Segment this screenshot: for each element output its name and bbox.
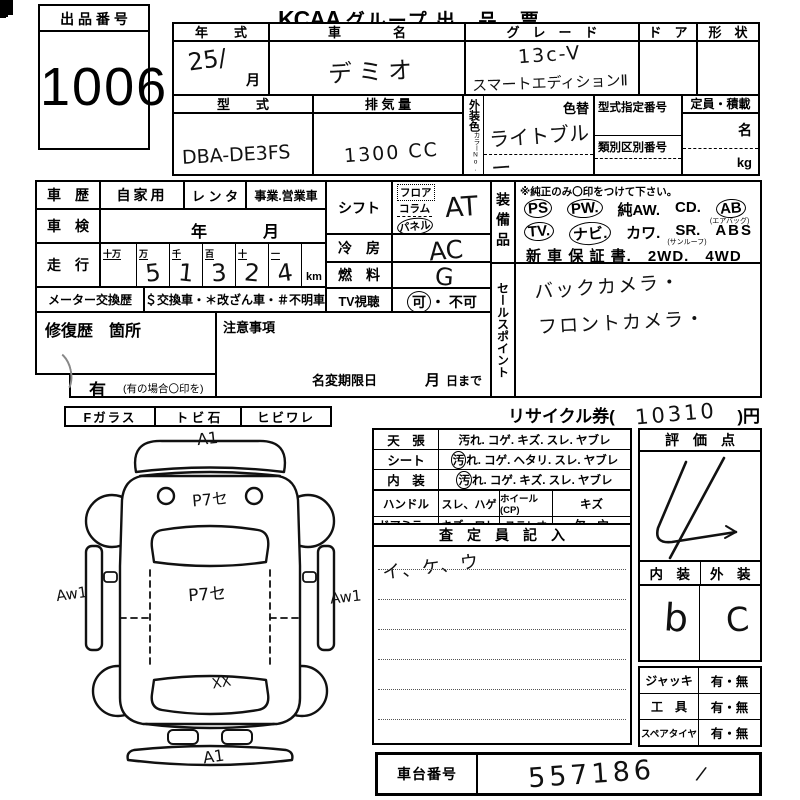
year-value: 25/ [186, 43, 228, 76]
grade-value-line2: スマートエディションⅡ [472, 69, 629, 95]
assessor-note: イ、ケ、ウ [381, 547, 482, 585]
tool-row-spare: スペアタイヤ 有・無 [640, 720, 760, 745]
shift-value-cell: フロア コラム パネル AT [391, 180, 492, 235]
mileage-col-100: 百 3 [203, 244, 236, 286]
spare-tire-label: スペアタイヤ [641, 726, 697, 740]
mileage-label: 走 行 [47, 255, 89, 275]
digit-value: 1 [169, 257, 204, 288]
chassis-label: 車台番号 [397, 764, 457, 784]
digit-value: 5 [136, 257, 171, 288]
repair-yes-cell: 有 (有の場合〇印を) [69, 373, 217, 398]
shaken-year-label: 年 [191, 218, 207, 242]
equipment-side-cell: 装備品 [490, 180, 516, 264]
wheel-items: キズ [580, 496, 603, 512]
ac-label: 冷 房 [338, 238, 380, 258]
equip-kawa: カワ. [626, 222, 660, 243]
equipment-cell: ※純正のみ〇印をつけて下さい。 PS PW. 純AW. CD. AB (エアバッ… [514, 180, 762, 264]
mileage-value-cell: 十万 万 5 千 1 百 3 十 2 一 4 km [99, 242, 327, 288]
class-number-label: 類別区別番号 [595, 136, 681, 155]
interior-score-value: b [662, 595, 689, 641]
score-value-text: 4 [640, 452, 641, 453]
meter-history-text-cell: ＄交換車・＊改ざん車・＃不明車 [143, 286, 327, 313]
score-box: 評 価 点 4 内 装 外 装 b C [638, 428, 762, 662]
condition-table: 天 張 汚れ. コゲ. キズ. スレ. ヤブレ シート 汚れ. コゲ. ヘタリ.… [372, 428, 632, 528]
mileage-col-10: 十 2 [236, 244, 269, 286]
ac-value-cell: AC [391, 233, 492, 263]
month-label: 月 [246, 70, 260, 90]
chassis-label-cell: 車台番号 [378, 755, 478, 793]
repair-history-label: 修復歴 箇所 [37, 313, 215, 341]
sales-side-cell: セールスポイント [490, 262, 516, 398]
assessor-line [378, 659, 626, 660]
exterior-color-cell: 外装色 カラーNo. 色替 ライトブルー [462, 94, 595, 176]
model-code-value: DBA-DE3FS [181, 141, 290, 169]
door-cell: ド ア [638, 22, 698, 96]
equip-cd: CD. [675, 199, 701, 216]
fuel-value-cell: G [391, 261, 492, 289]
history-label-cell: 車 歴 [35, 180, 101, 210]
displacement-cell: 排 気 量 1300 CC [312, 94, 464, 176]
shape-cell: 形 状 [696, 22, 760, 96]
tv-ng: ・ 不可 [431, 294, 477, 310]
mileage-col-100k: 十万 [101, 244, 137, 286]
mileage-col-1k: 千 1 [170, 244, 203, 286]
seat-items: れ. コゲ. ヘタリ. スレ. ヤブレ [466, 452, 618, 468]
shift-option-floor: フロア [397, 184, 435, 201]
jack-value: 有・無 [711, 671, 749, 690]
seat-label: シート [387, 450, 425, 469]
tv-ok-circled: 可 [407, 291, 431, 313]
mark-xx: XX [211, 673, 233, 692]
sales-line2: フロントカメラ・ [537, 304, 706, 340]
history-business: 事業.営業車 [254, 187, 317, 204]
equipment-side-label: 装備品 [493, 192, 513, 252]
mark-p-center: P7セ [187, 579, 227, 607]
tv-label-cell: TV視聴 [325, 287, 393, 313]
rename-deadline-label: 名変期限日 [312, 370, 377, 389]
assessor-box: 査 定 員 記 入 イ、ケ、ウ [372, 523, 632, 745]
history-private: 自家用 [117, 185, 168, 205]
handle-items: スレ、ハゲ [442, 496, 497, 512]
car-name-label: 車 名 [270, 24, 464, 42]
equipment-note: ※純正のみ〇印をつけて下さい。 [516, 182, 760, 199]
type-number-top: 型式指定番号 [595, 96, 681, 136]
tv-label: TV視聴 [339, 291, 380, 310]
history-private-cell: 自家用 [99, 180, 185, 210]
door-label: ド ア [640, 24, 696, 42]
sales-side-label: セールスポイント [495, 282, 512, 378]
spare-tire-value: 有・無 [711, 723, 749, 742]
assessor-line [378, 569, 626, 570]
mileage-unit: km [306, 271, 322, 283]
score-sub-divider [699, 586, 700, 660]
fglass-label: Fガラス [84, 407, 137, 426]
history-rental-cell: レ ン タ [183, 180, 247, 210]
weight-unit: kg [737, 155, 752, 170]
condition-row-handle: ハンドル スレ、ハゲ ホイール(CP) キズ [374, 491, 630, 517]
chassis-value: 557186 [527, 755, 656, 795]
model-code-cell: 型 式 DBA-DE3FS [172, 94, 314, 176]
exterior-score-label: 外 装 [710, 563, 751, 583]
persons-unit: 名 [738, 120, 752, 140]
chassis-box: 車台番号 557186 / [375, 752, 762, 796]
model-code-label: 型 式 [174, 96, 312, 114]
grade-cell: グ レ ー ド 13c-V スマートエディションⅡ [464, 22, 640, 96]
interior-circled-item: 汚 [456, 471, 472, 489]
grade-value-line1: 13c-V [517, 42, 582, 68]
history-rental: レ ン タ [192, 186, 238, 205]
scan-artifact [0, 0, 6, 18]
recycle-row: リサイクル券( 10310 )円 [490, 400, 762, 426]
hibiware-cell: ヒビワレ [240, 406, 332, 427]
assessor-title: 査 定 員 記 入 [374, 525, 630, 547]
ceiling-label: 天 張 [387, 430, 425, 449]
seat-circled-item: 汚 [451, 451, 467, 469]
history-business-cell: 事業.営業車 [245, 180, 327, 210]
capacity-cell: 定員・積載 名 kg [681, 94, 760, 176]
equip-abs: ABS [715, 222, 753, 239]
tv-value: 可・ 不可 [407, 291, 477, 313]
recycle-value: 10310 [634, 398, 718, 429]
tools-value: 有・無 [711, 697, 749, 716]
sales-cell: バックカメラ・ フロントカメラ・ [514, 262, 762, 398]
digit-value: 2 [235, 258, 269, 289]
year-label: 年 式 [174, 24, 268, 42]
tool-row-tools: 工 具 有・無 [640, 694, 760, 720]
shift-option-column: コラム [397, 201, 432, 217]
equip-aw: 純AW. [618, 199, 661, 220]
exterior-color-label: 外装色 [466, 99, 482, 132]
interior-label: 内 装 [387, 470, 425, 489]
digit-header: 十万 [103, 249, 121, 260]
hibiware-label: ヒビワレ [257, 407, 315, 426]
shift-value: AT [444, 191, 479, 224]
mileage-col-10k: 万 5 [137, 244, 170, 286]
car-name-value: デミオ [327, 50, 419, 90]
score-title: 評 価 点 [640, 430, 760, 452]
fuel-label-cell: 燃 料 [325, 261, 393, 289]
lot-number-label: 出 品 番 号 [40, 6, 148, 32]
meter-history-label: メーター交換歴 [48, 291, 132, 308]
mark-p-upper: P7セ [191, 484, 229, 511]
ac-label-cell: 冷 房 [325, 233, 393, 263]
handle-label: ハンドル [383, 496, 429, 512]
assessor-line [378, 599, 626, 600]
equip-navi: ナビ. [568, 221, 612, 247]
displacement-value: 1300 CC [343, 139, 439, 168]
shaken-label-cell: 車 検 [35, 208, 101, 244]
history-label: 車 歴 [47, 185, 89, 205]
condition-row-seat: シート 汚れ. コゲ. ヘタリ. スレ. ヤブレ [374, 450, 630, 470]
mileage-label-cell: 走 行 [35, 242, 101, 288]
mileage-col-1: 一 4 [269, 244, 302, 286]
fuel-label: 燃 料 [338, 265, 380, 285]
digit-header: 一 [271, 249, 280, 260]
tools-label: 工 具 [651, 698, 687, 715]
digit-header: 万 [139, 249, 148, 260]
assessor-line [378, 629, 626, 630]
score-sub-header: 内 装 外 装 [640, 560, 760, 586]
assessor-line [378, 719, 626, 720]
recycle-label-pre: リサイクル券( [508, 402, 615, 427]
tobi-label: ト ビ 石 [176, 407, 220, 426]
shaken-value-cell: 年 月 [99, 208, 327, 244]
equip-ps: PS [523, 198, 552, 219]
auction-sheet: 出 品 番 号 1006 KCAA グループ 出 品 票 主 催 者 用 年 式… [0, 0, 800, 800]
fglass-cell: Fガラス [64, 406, 156, 427]
shift-label-cell: シフト [325, 180, 393, 235]
shape-label: 形 状 [698, 24, 758, 42]
condition-row-interior: 内 装 汚れ. コゲ. キズ. スレ. ヤブレ [374, 470, 630, 491]
equip-pw: PW. [566, 198, 603, 219]
equipment-line1: PS PW. 純AW. CD. AB (エアバッグ) [524, 199, 746, 220]
exterior-score-value: C [724, 599, 750, 640]
digit-value: 3 [202, 258, 236, 288]
class-number-divider [595, 158, 681, 159]
meter-history-text: ＄交換車・＊改ざん車・＃不明車 [145, 291, 325, 308]
mark-aw-right: Aw1 [329, 586, 362, 607]
wheel-label: ホイール(CP) [500, 491, 552, 516]
jack-label: ジャッキ [645, 672, 692, 689]
mark-a1-bottom: A1 [202, 746, 226, 768]
interior-score-label: 内 装 [650, 563, 691, 583]
tools-box: ジャッキ 有・無 工 具 有・無 スペアタイヤ 有・無 [638, 666, 762, 747]
grade-label: グ レ ー ド [466, 24, 638, 42]
interior-items: れ. コゲ. キズ. スレ. ヤブレ [472, 472, 613, 488]
type-number-label: 型式指定番号 [595, 96, 681, 115]
meter-history-label-cell: メーター交換歴 [35, 286, 145, 313]
car-name-cell: 車 名 デミオ [268, 22, 466, 96]
assessor-line [378, 689, 626, 690]
capacity-divider [683, 148, 758, 149]
shaken-month-label: 月 [263, 218, 279, 242]
ceiling-items: 汚れ. コゲ. キズ. スレ. ヤブレ [458, 432, 610, 448]
capacity-label: 定員・積載 [683, 96, 758, 114]
year-cell: 年 式 25/ 月 [172, 22, 270, 96]
displacement-label: 排 気 量 [314, 96, 462, 114]
shift-label: シフト [338, 198, 380, 218]
rename-month-label: 月 [425, 369, 440, 390]
recycle-label-post: )円 [737, 402, 760, 427]
color-cell-divider [484, 154, 593, 155]
digit-value: 4 [267, 257, 303, 289]
lot-number-box: 出 品 番 号 1006 [38, 4, 150, 150]
equip-tv: TV. [523, 221, 554, 242]
lot-number-value: 1006 [40, 56, 148, 118]
condition-row-ceiling: 天 張 汚れ. コゲ. キズ. スレ. ヤブレ [374, 430, 630, 450]
class-number-bottom: 類別区別番号 [595, 136, 681, 174]
tv-value-cell: 可・ 不可 [391, 287, 492, 313]
repair-yes-note: (有の場合〇印を) [123, 381, 204, 396]
score-handwritten-4 [640, 454, 758, 562]
equipment-line2: TV. ナビ. カワ. SR. (サンルーフ) ABS [524, 222, 753, 245]
tool-row-jack: ジャッキ 有・無 [640, 668, 760, 694]
rename-day-label: 日まで [446, 372, 482, 389]
color-change-label: 色替 [563, 98, 589, 117]
notice-cell: 注意事項 名変期限日 月 日まで [215, 311, 492, 398]
notice-label: 注意事項 [217, 313, 490, 336]
shaken-label: 車 検 [47, 216, 89, 236]
color-no-label: カラーNo. [470, 132, 480, 173]
type-number-cell: 型式指定番号 類別区別番号 [593, 94, 683, 176]
repair-yes-label: 有 [89, 376, 106, 401]
mark-a1-top: A1 [196, 428, 219, 449]
sales-line1: バックカメラ・ [533, 267, 682, 304]
tobi-cell: ト ビ 石 [154, 406, 242, 427]
exterior-color-value: ライトブルー [488, 116, 595, 181]
chassis-tick-mark: / [694, 763, 708, 786]
exterior-color-side: 外装色 カラーNo. [464, 96, 484, 174]
